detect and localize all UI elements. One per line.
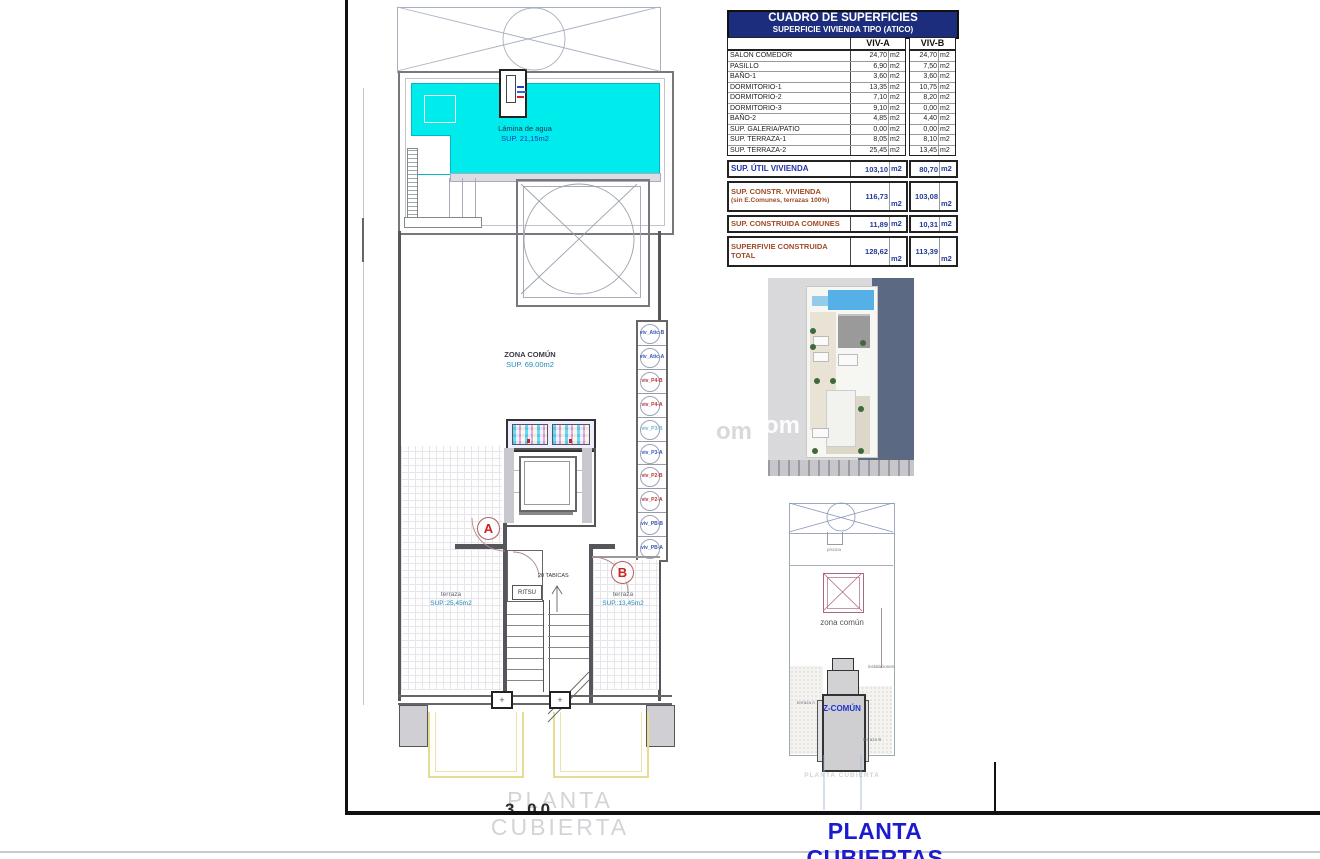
roof-pergola-outline — [397, 7, 661, 73]
terrace-left — [401, 446, 502, 690]
section-letter: B — [618, 565, 627, 580]
table-row: DORMITORIO-39,10m2 — [728, 103, 905, 114]
summary-unit: m2 — [939, 183, 956, 210]
table-row: 7,50m2 — [910, 61, 955, 72]
table-row: 10,75m2 — [910, 82, 955, 93]
schematic-caption: PLANTA CUBIERTA — [799, 772, 885, 779]
row-value-b: 7,50 — [910, 63, 938, 70]
table-subtitle: SUPERFICIE VIVIENDA TIPO (ATICO) — [729, 25, 957, 34]
plan-line — [462, 178, 463, 218]
row-value-a: 3,60 — [851, 73, 888, 80]
row-value-b: 8,20 — [910, 94, 938, 101]
level-mark — [517, 96, 524, 98]
elevator-car-inner — [524, 461, 570, 505]
row-label: BAÑO-1 — [728, 72, 851, 82]
row-label: DORMITORIO-1 — [728, 83, 851, 93]
row-value-b: 8,10 — [910, 136, 938, 143]
wall-hatch — [407, 148, 418, 220]
table-row: 0,00m2 — [910, 124, 955, 135]
common-zone-area: SUP. 69.00m2 — [480, 360, 580, 370]
common-zone-label: ZONA COMÚN SUP. 69.00m2 — [480, 350, 580, 370]
schematic-terraza-a-label: terraza A — [797, 700, 819, 705]
table-row: SUP. TERRAZA-18,05m2 — [728, 134, 905, 145]
schematic-core — [827, 670, 859, 696]
pool-label-name: Lámina de agua — [470, 124, 580, 134]
row-label: SALON COMEDOR — [728, 51, 851, 61]
table-row: 4,40m2 — [910, 113, 955, 124]
row-unit: m2 — [888, 125, 905, 135]
render-plant — [830, 378, 836, 384]
row-unit: m2 — [888, 72, 905, 82]
balcony-outline-right — [553, 712, 649, 778]
row-label: SUP. GALERIA/PATIO — [728, 125, 851, 135]
schematic-skylight-inner — [827, 577, 860, 609]
render-plant — [858, 448, 864, 454]
watermark-text: om — [768, 412, 800, 440]
vent-shaft-cell: viv_P3-A — [638, 441, 666, 465]
summary-unit: m2 — [889, 162, 906, 176]
duct-label: viv_Atic-A — [638, 354, 666, 360]
render-plant — [810, 328, 816, 334]
summary-label-line2: (sin E.Comunes, terrazas 100%) — [731, 197, 850, 204]
stair-risers-label: 20 TABICAS — [538, 573, 580, 579]
machine-panel — [552, 424, 590, 445]
summary-unit: m2 — [889, 217, 906, 231]
row-label: DORMITORIO-3 — [728, 104, 851, 114]
duct-label: viv_PB-B — [638, 521, 666, 527]
wall-segment — [398, 703, 672, 705]
row-value-b: 0,00 — [910, 105, 938, 112]
sheet-border-bottom — [345, 811, 1320, 815]
table-row: 24,70m2 — [910, 51, 955, 61]
row-unit: m2 — [938, 72, 955, 82]
titleblock-divider — [994, 762, 996, 812]
watermark-text-gray: om — [716, 418, 752, 446]
drain-box: + — [549, 691, 571, 709]
summary-value-b: 103,08 — [911, 192, 939, 201]
summary-value-a: 103,10 — [851, 165, 889, 174]
row-unit: m2 — [888, 104, 905, 114]
row-unit: m2 — [888, 146, 905, 156]
schematic-line — [881, 608, 882, 668]
elevator-sill — [519, 512, 573, 515]
row-unit: m2 — [888, 135, 905, 145]
common-zone-name: ZONA COMÚN — [480, 350, 580, 360]
summary-util-b: 80,70 m2 — [909, 160, 958, 178]
row-label: SUP. TERRAZA-2 — [728, 146, 851, 156]
duct-label: viv_P2-A — [638, 497, 666, 503]
table-body-b: 24,70m2 7,50m2 3,60m2 10,75m2 8,20m2 0,0… — [909, 50, 956, 156]
table-row: 3,60m2 — [910, 71, 955, 82]
table-title: CUADRO DE SUPERFICIES — [729, 12, 957, 25]
summary-label: SUPERFIVIE CONSTRUIDA TOTAL — [729, 238, 851, 265]
render-furniture — [838, 354, 858, 366]
parapet-pier — [646, 705, 675, 747]
summary-value-a: 128,62 — [851, 247, 889, 256]
plan-line — [475, 178, 476, 218]
duct-label: viv_P3-A — [638, 450, 666, 456]
page-edge-line — [0, 851, 1320, 853]
terrace-area: SUP.:13,45m2 — [592, 600, 654, 609]
render-plant — [812, 448, 818, 454]
summary-label: SUP. CONSTRUIDA COMUNES — [729, 217, 851, 231]
row-value-a: 9,10 — [851, 105, 888, 112]
row-value-b: 0,00 — [910, 126, 938, 133]
render-plant — [858, 406, 864, 412]
wall-segment — [592, 556, 660, 558]
row-value-b: 13,45 — [910, 147, 938, 154]
summary-value-b: 10,31 — [911, 220, 939, 229]
terrace-left-label: terraza SUP.:25,45m2 — [420, 591, 482, 609]
machine-panel — [512, 424, 548, 445]
row-unit: m2 — [938, 62, 955, 72]
table-column-header-a: VIV-A — [727, 37, 906, 50]
row-unit: m2 — [938, 125, 955, 135]
vent-shaft-cell: viv_P2-A — [638, 488, 666, 512]
schematic-pool-label: piscina — [820, 547, 848, 552]
row-unit: m2 — [938, 93, 955, 103]
stair-treads — [548, 604, 589, 662]
row-value-a: 7,10 — [851, 94, 888, 101]
summary-constr-b: 103,08 m2 — [909, 181, 958, 212]
elevator-wall — [504, 448, 514, 523]
render-sidewalk — [768, 460, 914, 476]
table-row: SALON COMEDOR24,70m2 — [728, 51, 905, 61]
aerial-render-image: om — [768, 278, 914, 476]
wall-segment — [589, 544, 615, 549]
plus-mark: + — [499, 695, 504, 705]
summary-unit: m2 — [939, 238, 956, 265]
row-unit: m2 — [888, 51, 905, 61]
pool-ladder-slot — [506, 75, 516, 103]
row-value-a: 6,90 — [851, 63, 888, 70]
section-letter: A — [484, 521, 493, 536]
table-row: 8,20m2 — [910, 92, 955, 103]
summary-value-a: 11,89 — [851, 220, 889, 229]
table-row: 13,45m2 — [910, 145, 955, 156]
schematic-instalaciones-label: instalaciones — [868, 664, 900, 669]
summary-comunes-a: SUP. CONSTRUIDA COMUNES 11,89 m2 — [727, 215, 908, 233]
row-unit: m2 — [888, 62, 905, 72]
render-furniture — [813, 352, 829, 362]
wall-segment — [589, 544, 593, 703]
row-unit: m2 — [938, 83, 955, 93]
summary-constr-a: SUP. CONSTR. VIVIENDA (sin E.Comunes, te… — [727, 181, 908, 212]
terrace-name: terraza — [420, 591, 482, 600]
pool-label-area: SUP. 21,15m2 — [470, 134, 580, 144]
row-value-b: 10,75 — [910, 84, 938, 91]
schematic-pergola-outline — [789, 503, 895, 534]
table-row: SUP. TERRAZA-225,45m2 — [728, 145, 905, 156]
ritsu-label: RITSU — [512, 585, 542, 600]
summary-label: SUP. CONSTR. VIVIENDA (sin E.Comunes, te… — [729, 183, 851, 210]
pool-label: Lámina de agua SUP. 21,15m2 — [470, 124, 580, 144]
machine-mark — [569, 439, 572, 443]
row-value-a: 25,45 — [851, 147, 888, 154]
summary-unit: m2 — [889, 183, 906, 210]
table-row: 0,00m2 — [910, 103, 955, 114]
elevator-wall — [582, 448, 592, 523]
render-stair-box — [826, 390, 856, 447]
row-unit: m2 — [938, 146, 955, 156]
table-row: DORMITORIO-113,35m2 — [728, 82, 905, 93]
render-furniture — [812, 428, 829, 438]
summary-label: SUP. ÚTIL VIVIENDA — [729, 162, 851, 176]
vent-shaft-cell: viv_PB-B — [638, 512, 666, 536]
summary-unit: m2 — [939, 162, 956, 176]
duct-label: viv_P4-B — [638, 378, 666, 384]
summary-value-a: 116,73 — [851, 192, 889, 201]
table-row: PASILLO6,90m2 — [728, 61, 905, 72]
wall-segment — [398, 695, 672, 697]
duct-label: viv_Atic-B — [638, 330, 666, 336]
row-label: BAÑO-2 — [728, 114, 851, 124]
vent-shaft-cell: viv_P2-B — [638, 464, 666, 488]
summary-util-a: SUP. ÚTIL VIVIENDA 103,10 m2 — [727, 160, 908, 178]
machine-mark — [527, 439, 530, 443]
plan-line — [449, 178, 450, 218]
row-label: PASILLO — [728, 62, 851, 72]
skylight-inner-outline — [523, 186, 641, 298]
summary-total-b: 113,39 m2 — [909, 236, 958, 267]
summary-comunes-b: 10,31 m2 — [909, 215, 958, 233]
row-value-a: 24,70 — [851, 52, 888, 59]
table-row: 8,10m2 — [910, 134, 955, 145]
row-unit: m2 — [888, 83, 905, 93]
balcony-inner-line — [435, 712, 517, 772]
level-mark — [517, 86, 524, 88]
table-row: BAÑO-24,85m2 — [728, 113, 905, 124]
row-value-a: 4,85 — [851, 115, 888, 122]
render-plant — [814, 378, 820, 384]
row-value-b: 4,40 — [910, 115, 938, 122]
vent-shaft: viv_Atic-B viv_Atic-A viv_P4-B viv_P4-A … — [636, 320, 668, 562]
summary-value-b: 113,39 — [911, 247, 939, 256]
table-row: SUP. GALERIA/PATIO0,00m2 — [728, 124, 905, 135]
row-unit: m2 — [888, 93, 905, 103]
row-unit: m2 — [938, 51, 955, 61]
row-unit: m2 — [938, 135, 955, 145]
terrace-right-label: terraza SUP.:13,45m2 — [592, 591, 654, 609]
drain-box: + — [491, 691, 513, 709]
schematic-common-zone-label: zona común — [812, 618, 872, 627]
table-blank-cell — [728, 38, 851, 49]
sheet-border-left — [345, 0, 348, 815]
column-viv-a: VIV-A — [851, 38, 905, 49]
row-label: DORMITORIO-2 — [728, 93, 851, 103]
balcony-inner-line — [560, 712, 642, 772]
duct-label: viv_P4-A — [638, 402, 666, 408]
balcony-outline-left — [428, 712, 524, 778]
render-pool — [828, 290, 874, 310]
row-value-b: 3,60 — [910, 73, 938, 80]
summary-total-a: SUPERFIVIE CONSTRUIDA TOTAL 128,62 m2 — [727, 236, 908, 267]
summary-label-line2: TOTAL — [731, 252, 850, 261]
plan-band — [404, 217, 482, 228]
wall-segment — [362, 218, 364, 262]
summary-unit: m2 — [939, 217, 956, 231]
schematic-line — [789, 565, 893, 566]
row-unit: m2 — [938, 104, 955, 114]
parapet-pier — [399, 705, 428, 747]
section-mark-b: B — [611, 561, 634, 584]
drawing-sheet: Lámina de agua SUP. 21,15m2 ZONA COMÚN S… — [0, 0, 1320, 859]
row-unit: m2 — [938, 114, 955, 124]
vent-shaft-cell: viv_P3-B — [638, 417, 666, 441]
level-mark — [517, 91, 526, 93]
duct-label: viv_PB-A — [638, 545, 666, 551]
table-header: CUADRO DE SUPERFICIES SUPERFICIE VIVIEND… — [727, 10, 959, 39]
row-label: SUP. TERRAZA-1 — [728, 135, 851, 145]
row-value-b: 24,70 — [910, 52, 938, 59]
row-value-a: 8,05 — [851, 136, 888, 143]
sheet-title: PLANTA CUBIERTAS — [770, 818, 980, 859]
row-value-a: 13,35 — [851, 84, 888, 91]
vent-shaft-cell: viv_P4-A — [638, 393, 666, 417]
summary-value-b: 80,70 — [911, 165, 939, 174]
render-pool-step — [812, 296, 828, 306]
plot-boundary — [363, 88, 364, 705]
section-mark-a: A — [477, 517, 500, 540]
terrace-name: terraza — [592, 591, 654, 600]
render-plant — [810, 344, 816, 350]
duct-label: viv_P3-B — [638, 426, 666, 432]
schematic-zcomun-label: Z-COMÚN — [818, 704, 866, 713]
terrace-area: SUP.:25,45m2 — [420, 600, 482, 609]
vent-shaft-cell: viv_Atic-A — [638, 345, 666, 369]
summary-unit: m2 — [889, 238, 906, 265]
table-row: DORMITORIO-27,10m2 — [728, 92, 905, 103]
schematic-tab — [827, 532, 843, 545]
column-viv-b: VIV-B — [909, 37, 956, 50]
pool-platform-outline — [424, 95, 456, 123]
wall-segment — [455, 544, 505, 549]
stair-treads — [507, 604, 543, 690]
row-value-a: 0,00 — [851, 126, 888, 133]
summary-label-line1: SUP. CONSTR. VIVIENDA — [731, 188, 850, 197]
duct-label: viv_P2-B — [638, 473, 666, 479]
vent-shaft-cell: viv_Atic-B — [638, 322, 666, 345]
schematic-terraza-b-label: terraza B — [863, 737, 885, 742]
plus-mark: + — [557, 695, 562, 705]
row-unit: m2 — [888, 114, 905, 124]
table-body-a: SALON COMEDOR24,70m2 PASILLO6,90m2 BAÑO-… — [727, 50, 906, 156]
render-plant — [860, 340, 866, 346]
table-row: BAÑO-13,60m2 — [728, 71, 905, 82]
vent-shaft-cell: viv_P4-B — [638, 369, 666, 393]
